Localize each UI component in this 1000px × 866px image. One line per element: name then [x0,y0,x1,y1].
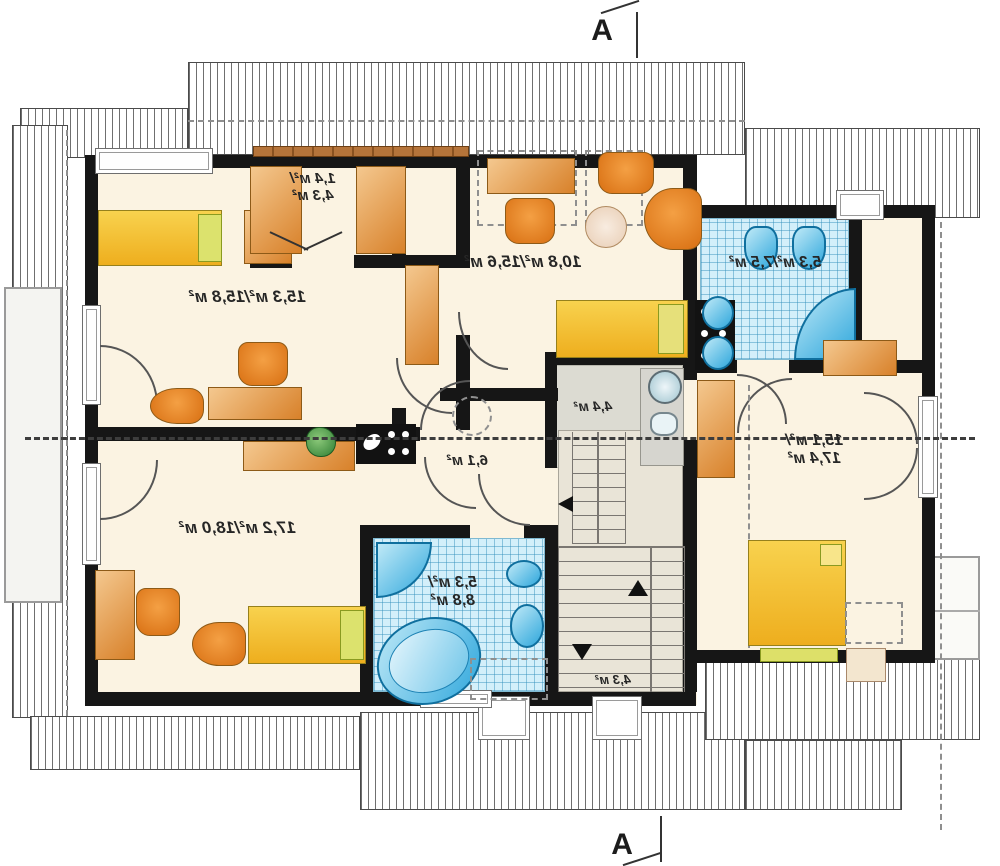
desk [487,158,575,194]
desk [208,387,302,420]
wardrobe-row-top [253,146,469,157]
section-marker-top-flag [601,0,640,14]
toilet [506,560,542,588]
floor-plan-canvas: 15,3 м²/15,8 м² 1,4 м²/ 4,3 м² 10,8 м²/1… [0,0,1000,866]
room-label-bedroom-bottom-left: 17,2 м²/18,0 м² [120,518,355,538]
stair-arrow-left [558,496,573,512]
nightstand [846,648,886,682]
chimney-flue-block-center [356,424,416,464]
sideboard [243,441,355,471]
room-label-bathroom-top: 5,3 м²/7,5 м² [698,254,853,272]
window-top-left [95,148,213,174]
washbasin [510,604,544,648]
roof-hatch-bottom-middle [360,712,745,810]
bed-pillow [340,610,364,660]
window-right-casement [918,396,938,498]
roof-hatch-bottom-left [30,716,360,770]
round-table [585,206,627,248]
wall-left-pier [85,405,98,463]
balcony-door-frame-top [82,305,101,405]
low-ceiling-outline [470,658,548,700]
wall-bath-bottom-top-a [360,525,470,538]
stair-landing-line [558,546,685,548]
roof-window-right [592,696,642,740]
desk [95,570,135,660]
stair-arrow-down [572,644,592,660]
bed-pillow [198,214,222,262]
wall-corridor-right-upper [456,168,470,263]
room-label-wardrobe-nook: 1,4 м²/ 4,3 м² [258,170,368,204]
bed-bench [760,648,838,662]
room-label-bedroom-top-middle: 10,8 м²/15,6 м² [408,252,638,272]
wall-stairs-right [683,440,697,692]
wardrobe [405,265,439,365]
roof-hatch-top [188,62,745,155]
wall-top-right [683,205,935,218]
section-marker-top-stem [636,12,638,58]
chair [505,198,555,244]
flue-dot [701,330,708,337]
window-bathroom-top [836,190,884,220]
stair-rail-upper [597,432,599,544]
roof-hatch-bottom-right-low [745,740,902,810]
armchair [644,188,702,250]
stair-arrow-up [628,580,648,596]
room-label-bedroom-top-left: 15,3 м²/15,8 м² [130,287,365,307]
washbasin [702,296,734,330]
room-label-bathroom-bottom: 5,3 м²/ 8,8 м² [398,574,508,610]
room-label-bedroom-right: 15,1 м²/ 17,4 м² [752,432,877,468]
roof-overhang-dashed-left [66,130,68,716]
wall-left-upper [85,168,98,305]
stair-flight-upper [572,432,626,544]
plant [306,427,336,457]
room-label-hallway: 6,1 м² [420,452,515,469]
wardrobe [823,340,897,376]
ceiling-opening-outline [452,396,492,436]
wall-utility-left [545,365,557,468]
washing-machine [648,370,682,404]
roof-hatch-bottom-right [705,652,980,740]
flue-dot [402,448,409,455]
wardrobe [697,380,735,478]
chair [598,152,654,194]
wall-right-lower [922,498,935,663]
balcony-door-frame-bottom [82,463,101,565]
stair-rail-main [650,548,652,692]
section-marker-bottom-stem [660,816,662,862]
room-label-staircase: 4,3 м² [568,672,658,687]
armchair [192,622,246,666]
roof-overhang-dashed-right [940,222,942,830]
chair [238,342,288,386]
bathtub-inner [380,619,477,703]
section-marker-top: A [572,14,632,48]
armchair [150,388,204,424]
room-label-utility: 4,4 м² [548,398,638,414]
terrace-left [4,287,62,603]
wall-bath-bottom-top-b [524,525,558,538]
bed-pillow [820,544,842,566]
utility-sink [650,412,678,436]
stair-flight-main [558,548,685,692]
wardrobe-outline [845,602,903,644]
chair [136,588,180,636]
roof-overhang-dashed-top [188,120,745,122]
flue-dot [388,448,395,455]
bed-pillow [658,304,684,354]
washbasin [702,336,734,370]
